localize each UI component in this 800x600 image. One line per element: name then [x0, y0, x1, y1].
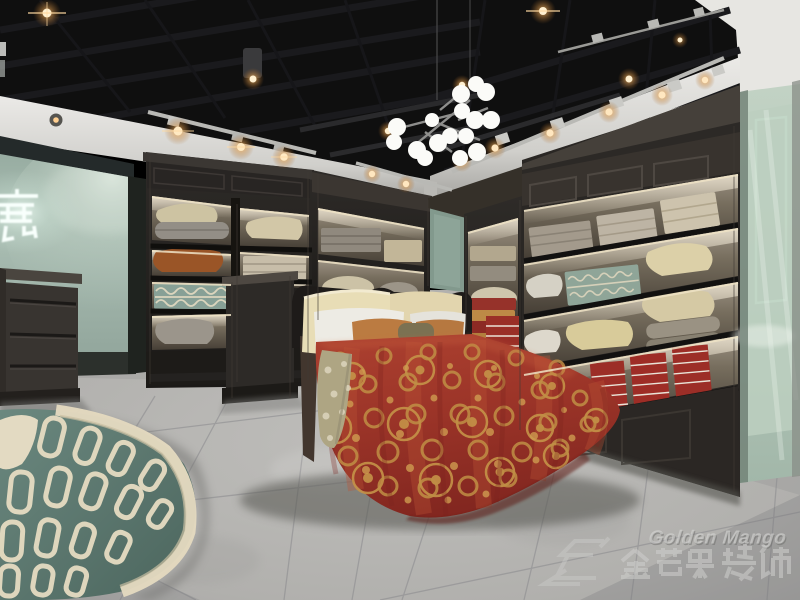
- svg-text:Golden Mango: Golden Mango: [647, 528, 787, 549]
